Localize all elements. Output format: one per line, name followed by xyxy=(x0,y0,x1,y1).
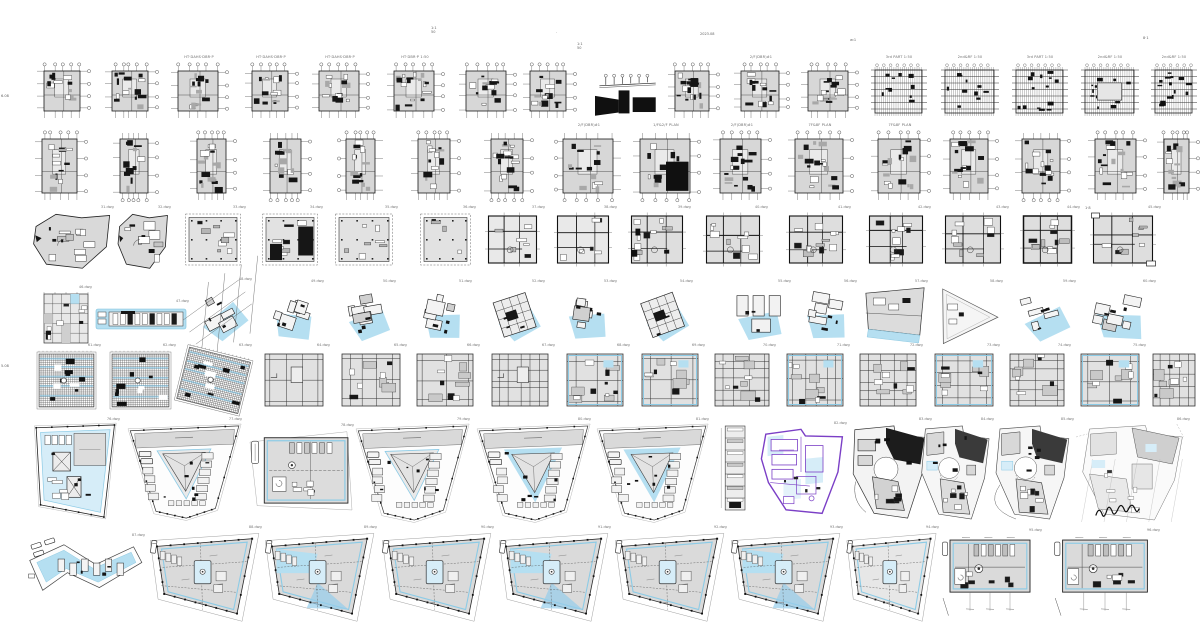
plan-file-tag: 73.dwg xyxy=(987,343,1000,347)
plan-file-tag: 87.dwg xyxy=(132,533,145,537)
plan-drawing xyxy=(869,130,931,202)
plan-poly-gray-r3-2[interactable]: 32.dwg xyxy=(117,212,169,270)
plan-trap-rooms-r7-5[interactable]: 91.dwg xyxy=(497,532,609,628)
plan-grid-dark-r1-1[interactable] xyxy=(35,62,91,120)
plan-file-tag: 78.dwg xyxy=(341,423,354,427)
plan-drawing xyxy=(629,212,689,270)
plan-poly-gray-r3-1[interactable]: 31.dwg xyxy=(32,212,112,270)
plan-file-tag: 61.dwg xyxy=(88,343,101,347)
plan-grid-sq-r5-12[interactable]: 72.dwg xyxy=(857,350,921,412)
plan-grid-dark-r2-6[interactable] xyxy=(409,130,461,202)
plan-drawing xyxy=(263,532,375,628)
plan-drawing xyxy=(666,62,720,120)
plan-caption: 7F&8F PLAN xyxy=(809,123,832,127)
plan-grid-dark-r2-14[interactable] xyxy=(1013,130,1071,202)
plan-file-tag: 41.dwg xyxy=(838,205,851,209)
plan-file-tag: 80.dwg xyxy=(578,417,591,421)
plan-file-tag: 90.dwg xyxy=(481,525,494,529)
plan-drawing xyxy=(416,286,470,346)
plan-drawing xyxy=(380,532,492,628)
plan-file-tag: 79.dwg xyxy=(457,417,470,421)
plan-drawing xyxy=(33,130,88,202)
plan-drawing xyxy=(712,424,756,516)
plan-drawing xyxy=(729,532,841,628)
plan-drawing xyxy=(732,62,790,120)
plan-drawing xyxy=(757,428,845,516)
plan-room-plan-r3-11[interactable]: 41.dwg xyxy=(787,212,849,270)
plan-file-tag: 67.dwg xyxy=(542,343,555,347)
plan-drawing xyxy=(111,130,159,202)
plan-drawing xyxy=(184,212,244,270)
plan-blue-cluster-r4-15[interactable]: 60.dwg xyxy=(1084,286,1154,346)
plan-grid-dark-r2-12[interactable]: 7F&8F PLAN xyxy=(869,130,931,202)
plan-drawing xyxy=(117,212,169,270)
plan-grid-sq-r5-14[interactable]: 74.dwg xyxy=(1007,350,1069,412)
plan-drawing xyxy=(178,350,250,412)
plan-drawing xyxy=(261,212,321,270)
plan-circle-irregular-r6-11[interactable]: 85.dwg xyxy=(992,424,1072,522)
plan-file-tag: 83.dwg xyxy=(919,417,932,421)
plan-file-tag: 38.dwg xyxy=(604,205,617,209)
plan-drawing xyxy=(593,72,657,118)
plan-grid-dark-r2-10[interactable]: 2/F(DBR)#1 xyxy=(711,130,772,202)
plan-drawing xyxy=(128,424,240,520)
plan-blue-cluster-r4-8[interactable]: 53.dwg xyxy=(559,286,615,346)
plan-caption: 3rd PART 1:50 xyxy=(1027,55,1053,59)
plan-drawing xyxy=(261,130,312,202)
plan-drawing xyxy=(932,350,998,412)
plan-caption: 2/F(DBR)#1 xyxy=(730,123,752,127)
plan-grid-dark-r1-3[interactable]: HT·DAHS·DBR·P xyxy=(169,62,229,120)
plan-drawing xyxy=(1012,286,1074,346)
plan-blue-cluster-r4-6[interactable]: 51.dwg xyxy=(416,286,470,346)
plan-drawing xyxy=(939,286,1001,346)
plan-drawing xyxy=(482,130,534,202)
plan-grid-sq-r5-6[interactable]: 66.dwg xyxy=(414,350,478,412)
plan-file-tag: 86.dwg xyxy=(1177,417,1190,421)
plan-caption: 1/F&2/F PLAN xyxy=(653,123,679,127)
plan-blue-cluster-r4-14[interactable]: 59.dwg xyxy=(1012,286,1074,346)
plan-drawing xyxy=(631,130,701,202)
plan-purple-plan-r6-8[interactable]: 82.dwg xyxy=(757,428,845,516)
plan-drawing xyxy=(334,212,396,270)
plan-drawing xyxy=(108,350,174,412)
tiny-annotation: 5.08 xyxy=(1,364,9,368)
plan-drawing xyxy=(712,350,774,412)
plan-file-tag: 40.dwg xyxy=(755,205,768,209)
plan-drawing xyxy=(597,424,707,522)
plan-drawing xyxy=(310,62,370,120)
plan-drawing xyxy=(419,212,474,270)
plan-rect-dashed-r3-6[interactable]: 36.dwg xyxy=(419,212,474,270)
plan-rect-dashed-r3-5[interactable]: 35.dwg xyxy=(334,212,396,270)
plan-drawing xyxy=(784,350,848,412)
plan-file-tag: 58.dwg xyxy=(990,279,1003,283)
plan-drawing xyxy=(857,350,921,412)
plan-grid-dark-r1-5[interactable]: HT·DAHS·DBR·P xyxy=(310,62,370,120)
plan-grid-dark-r2-7[interactable] xyxy=(482,130,534,202)
plan-drawing xyxy=(35,62,91,120)
plan-drawing xyxy=(1052,535,1158,619)
tiny-annotation: · xyxy=(556,31,557,35)
plan-file-tag: 34.dwg xyxy=(310,205,323,209)
plan-hatch-sq-r5-3[interactable]: 63.dwg xyxy=(178,350,250,412)
plan-grid-struct-r1-13[interactable]: 3rd PART 1:50 xyxy=(869,62,929,120)
plan-grid-struct-r1-15[interactable]: 3rd PART 1:50 xyxy=(1010,62,1070,120)
plan-file-tag: 59.dwg xyxy=(1063,279,1076,283)
plan-file-tag: 50.dwg xyxy=(383,279,396,283)
plan-drawing xyxy=(559,286,615,346)
plan-grid-dark-r2-1[interactable] xyxy=(33,130,88,202)
plan-caption: HT·DAHS·DBR·P xyxy=(325,55,355,59)
plan-drawing xyxy=(30,424,118,518)
plan-file-tag: 60.dwg xyxy=(1143,279,1156,283)
plan-room-plan-r3-10[interactable]: 40.dwg xyxy=(704,212,766,270)
plan-big-trap-tri-r6-6[interactable]: 81.dwg xyxy=(597,424,707,522)
plan-drawing xyxy=(1021,212,1078,270)
plan-file-tag: 77.dwg xyxy=(229,417,242,421)
plan-drawing xyxy=(864,286,926,346)
plan-file-tag: 68.dwg xyxy=(617,343,630,347)
plan-grid-dark-r1-11[interactable]: 2/F(DBR)#1 xyxy=(732,62,790,120)
plan-drawing xyxy=(943,212,1007,270)
plan-grid-dark-r2-15[interactable] xyxy=(1086,130,1147,202)
plan-file-tag: 82.dwg xyxy=(834,421,847,425)
plan-drawing xyxy=(940,535,1040,619)
plan-file-tag: 54.dwg xyxy=(680,279,693,283)
plan-grid-dark-r1-4[interactable]: HT·DAHS·DBR·P xyxy=(243,62,299,120)
plan-drawing xyxy=(1007,350,1069,412)
plan-drawing xyxy=(797,286,855,346)
plan-drawing xyxy=(613,532,725,628)
plan-room-plan-r3-7[interactable]: 37.dwg xyxy=(486,212,543,270)
plan-drawing xyxy=(489,350,553,412)
plan-grid-dark-r1-6[interactable]: HT·DBR·P 1:50 xyxy=(385,62,445,120)
plan-drawing xyxy=(787,212,849,270)
plan-drawing xyxy=(32,212,112,270)
plan-file-tag: 43.dwg xyxy=(996,205,1009,209)
plan-big-trap-tri-r6-2[interactable]: 77.dwg xyxy=(128,424,240,520)
plan-grid-struct-r1-16[interactable]: 2nd&RF 1:50 xyxy=(1079,62,1141,120)
plan-drawing xyxy=(639,350,703,412)
plan-drawing xyxy=(521,62,577,120)
plan-grid-dark-r2-2[interactable] xyxy=(111,130,159,202)
plan-file-tag: 91.dwg xyxy=(598,525,611,529)
plan-file-tag: 53.dwg xyxy=(604,279,617,283)
plan-file-tag: 70.dwg xyxy=(763,343,776,347)
plan-caption: 3rd PART 1:50 xyxy=(886,55,912,59)
plan-grid-dark-r2-8[interactable]: 2/F(DBR)#1 xyxy=(554,130,624,202)
plan-drawing xyxy=(799,62,859,120)
plan-grid-sq-r5-9[interactable]: 69.dwg xyxy=(639,350,703,412)
plan-drawing xyxy=(939,62,1001,120)
plan-drawing xyxy=(42,292,90,345)
plan-drawing xyxy=(727,286,789,346)
plan-file-tag: 89.dwg xyxy=(364,525,377,529)
plan-circle-irregular-r6-10[interactable]: 84.dwg xyxy=(918,424,992,522)
plan-file-tag: 45.dwg xyxy=(1148,205,1161,209)
plan-mech-rect2-r7-9[interactable]: 95.dwg xyxy=(940,535,1040,619)
plan-file-tag: 49.dwg xyxy=(311,279,324,283)
plan-drawing xyxy=(337,130,386,202)
plan-file-tag: 62.dwg xyxy=(163,343,176,347)
plan-file-tag: 31.dwg xyxy=(101,205,114,209)
plan-caption: 2/F(DBR)#1 xyxy=(578,123,600,127)
plan-file-tag: 63.dwg xyxy=(239,343,252,347)
plan-blue-cluster-r4-11[interactable]: 56.dwg xyxy=(797,286,855,346)
plan-file-tag: 74.dwg xyxy=(1058,343,1071,347)
plan-file-tag: 32.dwg xyxy=(158,205,171,209)
plan-drawing xyxy=(409,130,461,202)
plan-drawing xyxy=(385,62,445,120)
plan-trap-rooms-r7-7[interactable]: 93.dwg xyxy=(729,532,841,628)
plan-file-tag: 84.dwg xyxy=(981,417,994,421)
plan-file-tag: 94.dwg xyxy=(926,525,939,529)
plan-grid-struct-r1-17[interactable]: 2nd&RF 1:50 xyxy=(1149,62,1199,120)
plan-drawing xyxy=(25,540,143,608)
plan-caption: HT·DAHS·DBR·P xyxy=(256,55,286,59)
plan-drawing xyxy=(845,532,937,628)
plan-small-grid-r4-1[interactable]: 46.dwg xyxy=(42,292,90,345)
plan-grid-dark-r1-7[interactable] xyxy=(457,62,517,120)
plan-drawing xyxy=(1091,212,1159,270)
plan-room-plan-r3-12[interactable]: 42.dwg xyxy=(867,212,929,270)
plan-file-tag: 33.dwg xyxy=(233,205,246,209)
tiny-annotation: 2023.08 xyxy=(700,32,714,36)
plan-file-tag: 42.dwg xyxy=(918,205,931,209)
plan-grid-dark-r1-10[interactable] xyxy=(666,62,720,120)
plan-file-tag: 57.dwg xyxy=(915,279,928,283)
plan-thin-strip-r6-7[interactable] xyxy=(712,424,756,516)
plan-rect-dashed-r3-4[interactable]: 34.dwg xyxy=(261,212,321,270)
plan-drawing xyxy=(262,350,328,412)
ink-scribble-annotation xyxy=(1094,504,1140,524)
plan-grid-dark-r2-16[interactable] xyxy=(1155,130,1200,202)
tiny-annotation: 1·8 xyxy=(1085,206,1091,210)
plan-drawing xyxy=(188,130,237,202)
plan-file-tag: 75.dwg xyxy=(1133,343,1146,347)
plan-drawing xyxy=(992,424,1072,522)
plan-hatch-sq-r5-2[interactable]: 62.dwg xyxy=(108,350,174,412)
plan-blue-cluster-r4-9[interactable]: 54.dwg xyxy=(635,286,691,346)
plan-blue-cluster-r4-7[interactable]: 52.dwg xyxy=(487,286,543,346)
plan-file-tag: 66.dwg xyxy=(467,343,480,347)
plan-caption: HT·DAHS·DBR·P xyxy=(184,55,214,59)
plan-drawing xyxy=(1084,286,1154,346)
plan-drawing xyxy=(188,284,250,346)
plan-drawing xyxy=(338,286,394,346)
plan-grid-sq-r5-13[interactable]: 73.dwg xyxy=(932,350,998,412)
plan-trap-rooms-r7-4[interactable]: 90.dwg xyxy=(380,532,492,628)
plan-grid-dark-r2-3[interactable] xyxy=(188,130,237,202)
plan-trap-rooms-r7-3[interactable]: 89.dwg xyxy=(263,532,375,628)
plan-trap-rooms-r7-6[interactable]: 92.dwg xyxy=(613,532,725,628)
plan-room-plan-r3-15[interactable]: 45.dwg xyxy=(1091,212,1159,270)
plan-file-tag: 51.dwg xyxy=(459,279,472,283)
plan-file-tag: 81.dwg xyxy=(696,417,709,421)
plan-rect-dashed-r3-3[interactable]: 33.dwg xyxy=(184,212,244,270)
plan-drawing xyxy=(867,212,929,270)
plan-grid-dark-r2-9[interactable]: 1/F&2/F PLAN xyxy=(631,130,701,202)
plan-drawing xyxy=(704,212,766,270)
plan-file-tag: 52.dwg xyxy=(532,279,545,283)
plan-grid-sq-r5-11[interactable]: 71.dwg xyxy=(784,350,848,412)
plan-drawing xyxy=(356,424,468,522)
plan-caption: 2nd&RF 1:50 xyxy=(958,55,982,59)
plan-drawing xyxy=(635,286,691,346)
plan-drawing xyxy=(250,430,352,516)
plan-drawing xyxy=(1078,350,1144,412)
plan-grid-sq-r5-4[interactable]: 64.dwg xyxy=(262,350,328,412)
plan-blue-cluster-r4-10[interactable]: 55.dwg xyxy=(727,286,789,346)
plan-caption: HT·DBR·P 1:50 xyxy=(401,55,429,59)
plan-file-tag: 72.dwg xyxy=(910,343,923,347)
plan-drawing xyxy=(103,62,159,120)
plan-trap-rooms-r7-2[interactable]: 88.dwg xyxy=(148,532,260,628)
plan-drawing xyxy=(339,350,405,412)
plan-drawing xyxy=(786,130,854,202)
plan-file-tag: 95.dwg xyxy=(1029,528,1042,532)
plan-drawing xyxy=(487,286,543,346)
plan-file-tag: 76.dwg xyxy=(107,417,120,421)
tiny-annotation: 8·1 xyxy=(1143,36,1149,40)
plan-file-tag: 93.dwg xyxy=(830,525,843,529)
plan-drawing xyxy=(148,532,260,628)
plan-grid-dark-r2-4[interactable] xyxy=(261,130,312,202)
tiny-annotation: w:1 xyxy=(850,38,856,42)
plan-file-tag: 65.dwg xyxy=(394,343,407,347)
plan-drawing xyxy=(869,62,929,120)
plan-drawing xyxy=(555,212,615,270)
plan-room-plan-r3-9[interactable]: 39.dwg xyxy=(629,212,689,270)
plan-grid-dark-r2-13[interactable] xyxy=(941,130,999,202)
plan-drawing xyxy=(95,306,187,332)
plan-chevron-r7-1[interactable]: 87.dwg xyxy=(25,540,143,608)
plan-grid-struct-r1-14[interactable]: 2nd&RF 1:50 xyxy=(939,62,1001,120)
tiny-annotation: 1:1 50 xyxy=(577,42,583,50)
plan-drawing xyxy=(941,130,999,202)
plan-file-tag: 69.dwg xyxy=(692,343,705,347)
plan-drawing xyxy=(564,350,628,412)
plan-caption: 2nd&RF 1:50 xyxy=(1098,55,1122,59)
plan-drawing xyxy=(497,532,609,628)
plan-grid-dark-r1-8[interactable] xyxy=(521,62,577,120)
plan-file-tag: 35.dwg xyxy=(385,205,398,209)
plan-drawing xyxy=(486,212,543,270)
plan-blue-cluster-r4-5[interactable]: 50.dwg xyxy=(338,286,394,346)
plan-file-tag: 56.dwg xyxy=(844,279,857,283)
plan-file-tag: 96.dwg xyxy=(1147,528,1160,532)
plan-drawing xyxy=(1010,62,1070,120)
plan-grid-dark-r2-5[interactable] xyxy=(337,130,386,202)
plan-file-tag: 88.dwg xyxy=(249,525,262,529)
plan-file-tag: 37.dwg xyxy=(532,205,545,209)
plan-file-tag: 92.dwg xyxy=(714,525,727,529)
plan-grid-dark-r2-11[interactable]: 7F&8F PLAN xyxy=(786,130,854,202)
tiny-annotation: 6.08 xyxy=(1,94,9,98)
plan-big-trap-x-r6-1[interactable]: 76.dwg xyxy=(30,424,118,518)
plan-room-plan-r3-14[interactable]: 44.dwg xyxy=(1021,212,1078,270)
plan-drawing xyxy=(1013,130,1071,202)
plan-caption: 2nd&RF 1:50 xyxy=(1162,55,1186,59)
plan-drawing xyxy=(414,350,478,412)
plan-drawing xyxy=(457,62,517,120)
plan-drawing xyxy=(35,350,99,412)
plan-file-tag: 46.dwg xyxy=(79,285,92,289)
plan-file-tag: 48.dwg xyxy=(239,277,252,281)
cad-canvas[interactable]: HT·DAHS·DBR·PHT·DAHS·DBR·PHT·DAHS·DBR·PH… xyxy=(0,0,1200,644)
plan-blue-cluster-r4-4[interactable]: 49.dwg xyxy=(266,286,322,346)
plan-hatch-sq-r5-1[interactable]: 61.dwg xyxy=(35,350,99,412)
plan-drawing xyxy=(554,130,624,202)
plan-caption: 2/F(DBR)#1 xyxy=(750,55,772,59)
plan-drawing xyxy=(1150,350,1200,412)
plan-mech-rect2-r7-10[interactable]: 96.dwg xyxy=(1052,535,1158,619)
plan-room-plan-r3-8[interactable]: 38.dwg xyxy=(555,212,615,270)
plan-grid-sq-r5-10[interactable]: 70.dwg xyxy=(712,350,774,412)
plan-trap-rooms-r7-8[interactable]: 94.dwg xyxy=(845,532,937,628)
plan-drawing xyxy=(169,62,229,120)
plan-grid-sq-r5-15[interactable]: 75.dwg xyxy=(1078,350,1144,412)
plan-grid-dark-r1-12[interactable] xyxy=(799,62,859,120)
plan-file-tag: 64.dwg xyxy=(317,343,330,347)
plan-tri-outline-r4-13[interactable]: 58.dwg xyxy=(939,286,1001,346)
plan-blue-cluster-r4-3[interactable]: 48.dwg xyxy=(188,284,250,346)
plan-grid-sq-r5-7[interactable]: 67.dwg xyxy=(489,350,553,412)
plan-file-tag: 39.dwg xyxy=(678,205,691,209)
plan-blue-trap-r4-12[interactable]: 57.dwg xyxy=(864,286,926,346)
plan-caption: 7F&8F PLAN xyxy=(889,123,912,127)
plan-grid-dark-r1-2[interactable] xyxy=(103,62,159,120)
plan-mech-rect-r6-3[interactable]: 78.dwg xyxy=(250,430,352,516)
plan-drawing xyxy=(266,286,322,346)
tiny-annotation: 1:1 50 xyxy=(431,26,437,34)
plan-drawing xyxy=(1155,130,1200,202)
plan-file-tag: 44.dwg xyxy=(1067,205,1080,209)
plan-grid-sq-r5-16[interactable] xyxy=(1150,350,1200,412)
plan-file-tag: 71.dwg xyxy=(837,343,850,347)
plan-drawing xyxy=(711,130,772,202)
plan-drawing xyxy=(918,424,992,522)
plan-drawing xyxy=(477,424,589,522)
plan-blue-strip-r4-2[interactable]: 47.dwg xyxy=(95,306,187,332)
plan-drawing xyxy=(1086,130,1147,202)
plan-grid-sq-r5-5[interactable]: 65.dwg xyxy=(339,350,405,412)
plan-room-plan-r3-13[interactable]: 43.dwg xyxy=(943,212,1007,270)
plan-file-tag: 36.dwg xyxy=(463,205,476,209)
plan-elevation-r1-9[interactable] xyxy=(593,72,657,118)
plan-big-trap-tri-r6-4[interactable]: 79.dwg xyxy=(356,424,468,522)
plan-big-trap-tri-r6-5[interactable]: 80.dwg xyxy=(477,424,589,522)
plan-drawing xyxy=(243,62,299,120)
plan-drawing xyxy=(1149,62,1199,120)
plan-file-tag: 85.dwg xyxy=(1061,417,1074,421)
plan-drawing xyxy=(1079,62,1141,120)
plan-file-tag: 55.dwg xyxy=(778,279,791,283)
plan-grid-sq-r5-8[interactable]: 68.dwg xyxy=(564,350,628,412)
